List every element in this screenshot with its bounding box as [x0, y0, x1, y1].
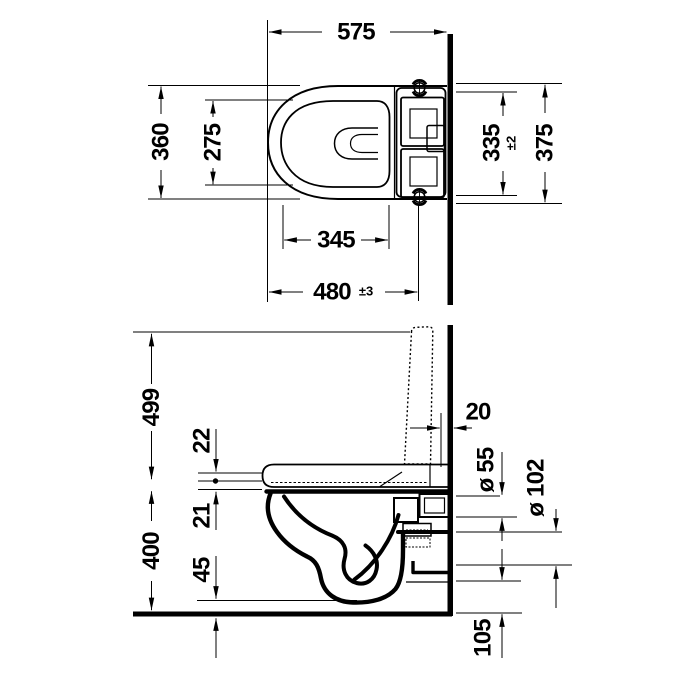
- dim-480-label: 480: [313, 279, 351, 306]
- fixing-screw-bottom: [411, 189, 428, 204]
- side-view: 499 400 22 21 45 20: [133, 325, 572, 658]
- floor-line: [133, 612, 452, 617]
- dim-480-tolerance-label: ±3: [359, 284, 373, 299]
- dim-335-label: 335: [479, 124, 506, 162]
- drawing-page: 575 360 275 335 ±2 375: [0, 0, 700, 700]
- dimension-rim-height: 400: [138, 491, 165, 610]
- dim-o102-label: ø 102: [523, 459, 550, 517]
- technical-drawing-canvas: 575 360 275 335 ±2 375: [0, 0, 700, 700]
- dimension-seat-lower-offset: 21: [189, 492, 217, 530]
- dimension-underside-clearance: 45: [189, 556, 217, 658]
- dim-375-label: 375: [532, 124, 559, 162]
- dim-335-tolerance-label: ±2: [504, 136, 519, 150]
- dimension-front-to-fixing: 480 ±3: [269, 279, 417, 306]
- dim-360-label: 360: [148, 123, 175, 161]
- dim-105-label: 105: [470, 619, 497, 657]
- dim-275-label: 275: [200, 123, 227, 161]
- nozzle-cover-inner-line: [351, 135, 379, 153]
- dimension-overall-length: 575: [269, 19, 447, 46]
- mounting-block-lower-inner: [410, 157, 437, 186]
- nozzle-cover-outline: [335, 128, 379, 159]
- outlet-bottom-bracket: [413, 561, 448, 573]
- mounting-plate: [397, 88, 446, 197]
- dimension-inner-width: 275: [200, 101, 227, 184]
- fixing-screw-top: [411, 80, 428, 95]
- dimension-outlet-large-diameter: ø 102: [523, 459, 557, 608]
- wall-section-line-top-view: [448, 34, 454, 305]
- dim-345-label: 345: [317, 227, 355, 254]
- top-view: 575 360 275 335 ±2 375: [148, 19, 563, 306]
- dim-22-label: 22: [189, 428, 216, 454]
- dim-o55-label: ø 55: [473, 447, 500, 492]
- bowl-outer-outline: [268, 86, 447, 199]
- dim-20-label: 20: [465, 399, 491, 426]
- wall-section-line-side-view: [448, 325, 454, 616]
- dimension-seat-upper-offset: 22: [189, 428, 217, 471]
- dimension-open-lid-height: 499: [138, 334, 165, 480]
- open-lid-outline: [405, 327, 433, 464]
- reference-point-marker: [213, 478, 218, 483]
- dim-575-label: 575: [337, 19, 375, 46]
- dimension-seat-opening-length: 345: [284, 227, 388, 254]
- seat-underside-contour: [380, 472, 402, 487]
- dimension-fixing-span: 335 ±2: [479, 93, 519, 195]
- drain-hidden-outline: [406, 538, 430, 547]
- dimension-outlet-small-diameter: ø 55: [473, 447, 503, 541]
- mounting-block-upper-inner: [410, 109, 437, 138]
- seat-profile-outline: [263, 465, 449, 488]
- dim-499-label: 499: [138, 388, 165, 426]
- dimension-rear-width: 375: [532, 85, 559, 203]
- dim-400-label: 400: [138, 532, 165, 570]
- dimension-outer-width: 360: [148, 87, 175, 199]
- dim-45-label: 45: [189, 557, 216, 583]
- outlet-pipe-inner: [425, 498, 445, 513]
- dim-21-label: 21: [189, 503, 216, 529]
